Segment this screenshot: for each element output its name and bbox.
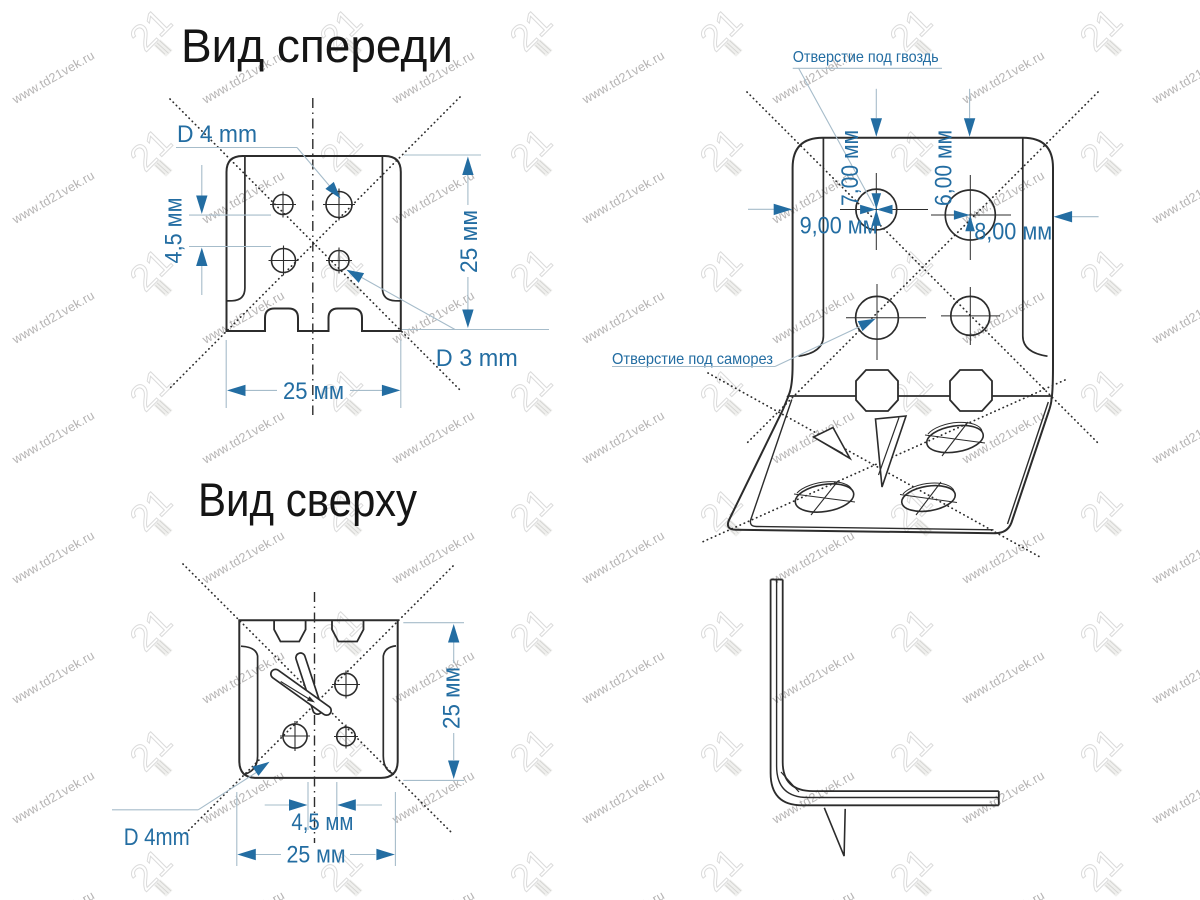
svg-text:25 мм: 25 мм [456, 210, 483, 273]
svg-text:4,5 мм: 4,5 мм [161, 198, 188, 264]
svg-text:25 мм: 25 мм [439, 667, 466, 729]
svg-text:D 4 mm: D 4 mm [177, 121, 257, 148]
svg-text:7,00 мм: 7,00 мм [837, 130, 864, 206]
svg-text:25 мм: 25 мм [287, 842, 346, 869]
svg-text:6,00 мм: 6,00 мм [931, 130, 958, 206]
svg-text:Вид сверху: Вид сверху [198, 473, 417, 526]
svg-text:Отверстие под саморез: Отверстие под саморез [612, 351, 773, 368]
svg-text:Вид спереди: Вид спереди [181, 19, 453, 72]
svg-text:Отверстие под гвоздь: Отверстие под гвоздь [793, 49, 939, 66]
svg-text:4,5 мм: 4,5 мм [291, 809, 353, 836]
svg-text:25 мм: 25 мм [283, 378, 344, 405]
svg-text:9,00 мм: 9,00 мм [800, 213, 878, 240]
svg-text:D 3 mm: D 3 mm [436, 345, 518, 372]
svg-text:D 4mm: D 4mm [124, 824, 190, 851]
svg-text:8,00 мм: 8,00 мм [974, 219, 1052, 246]
